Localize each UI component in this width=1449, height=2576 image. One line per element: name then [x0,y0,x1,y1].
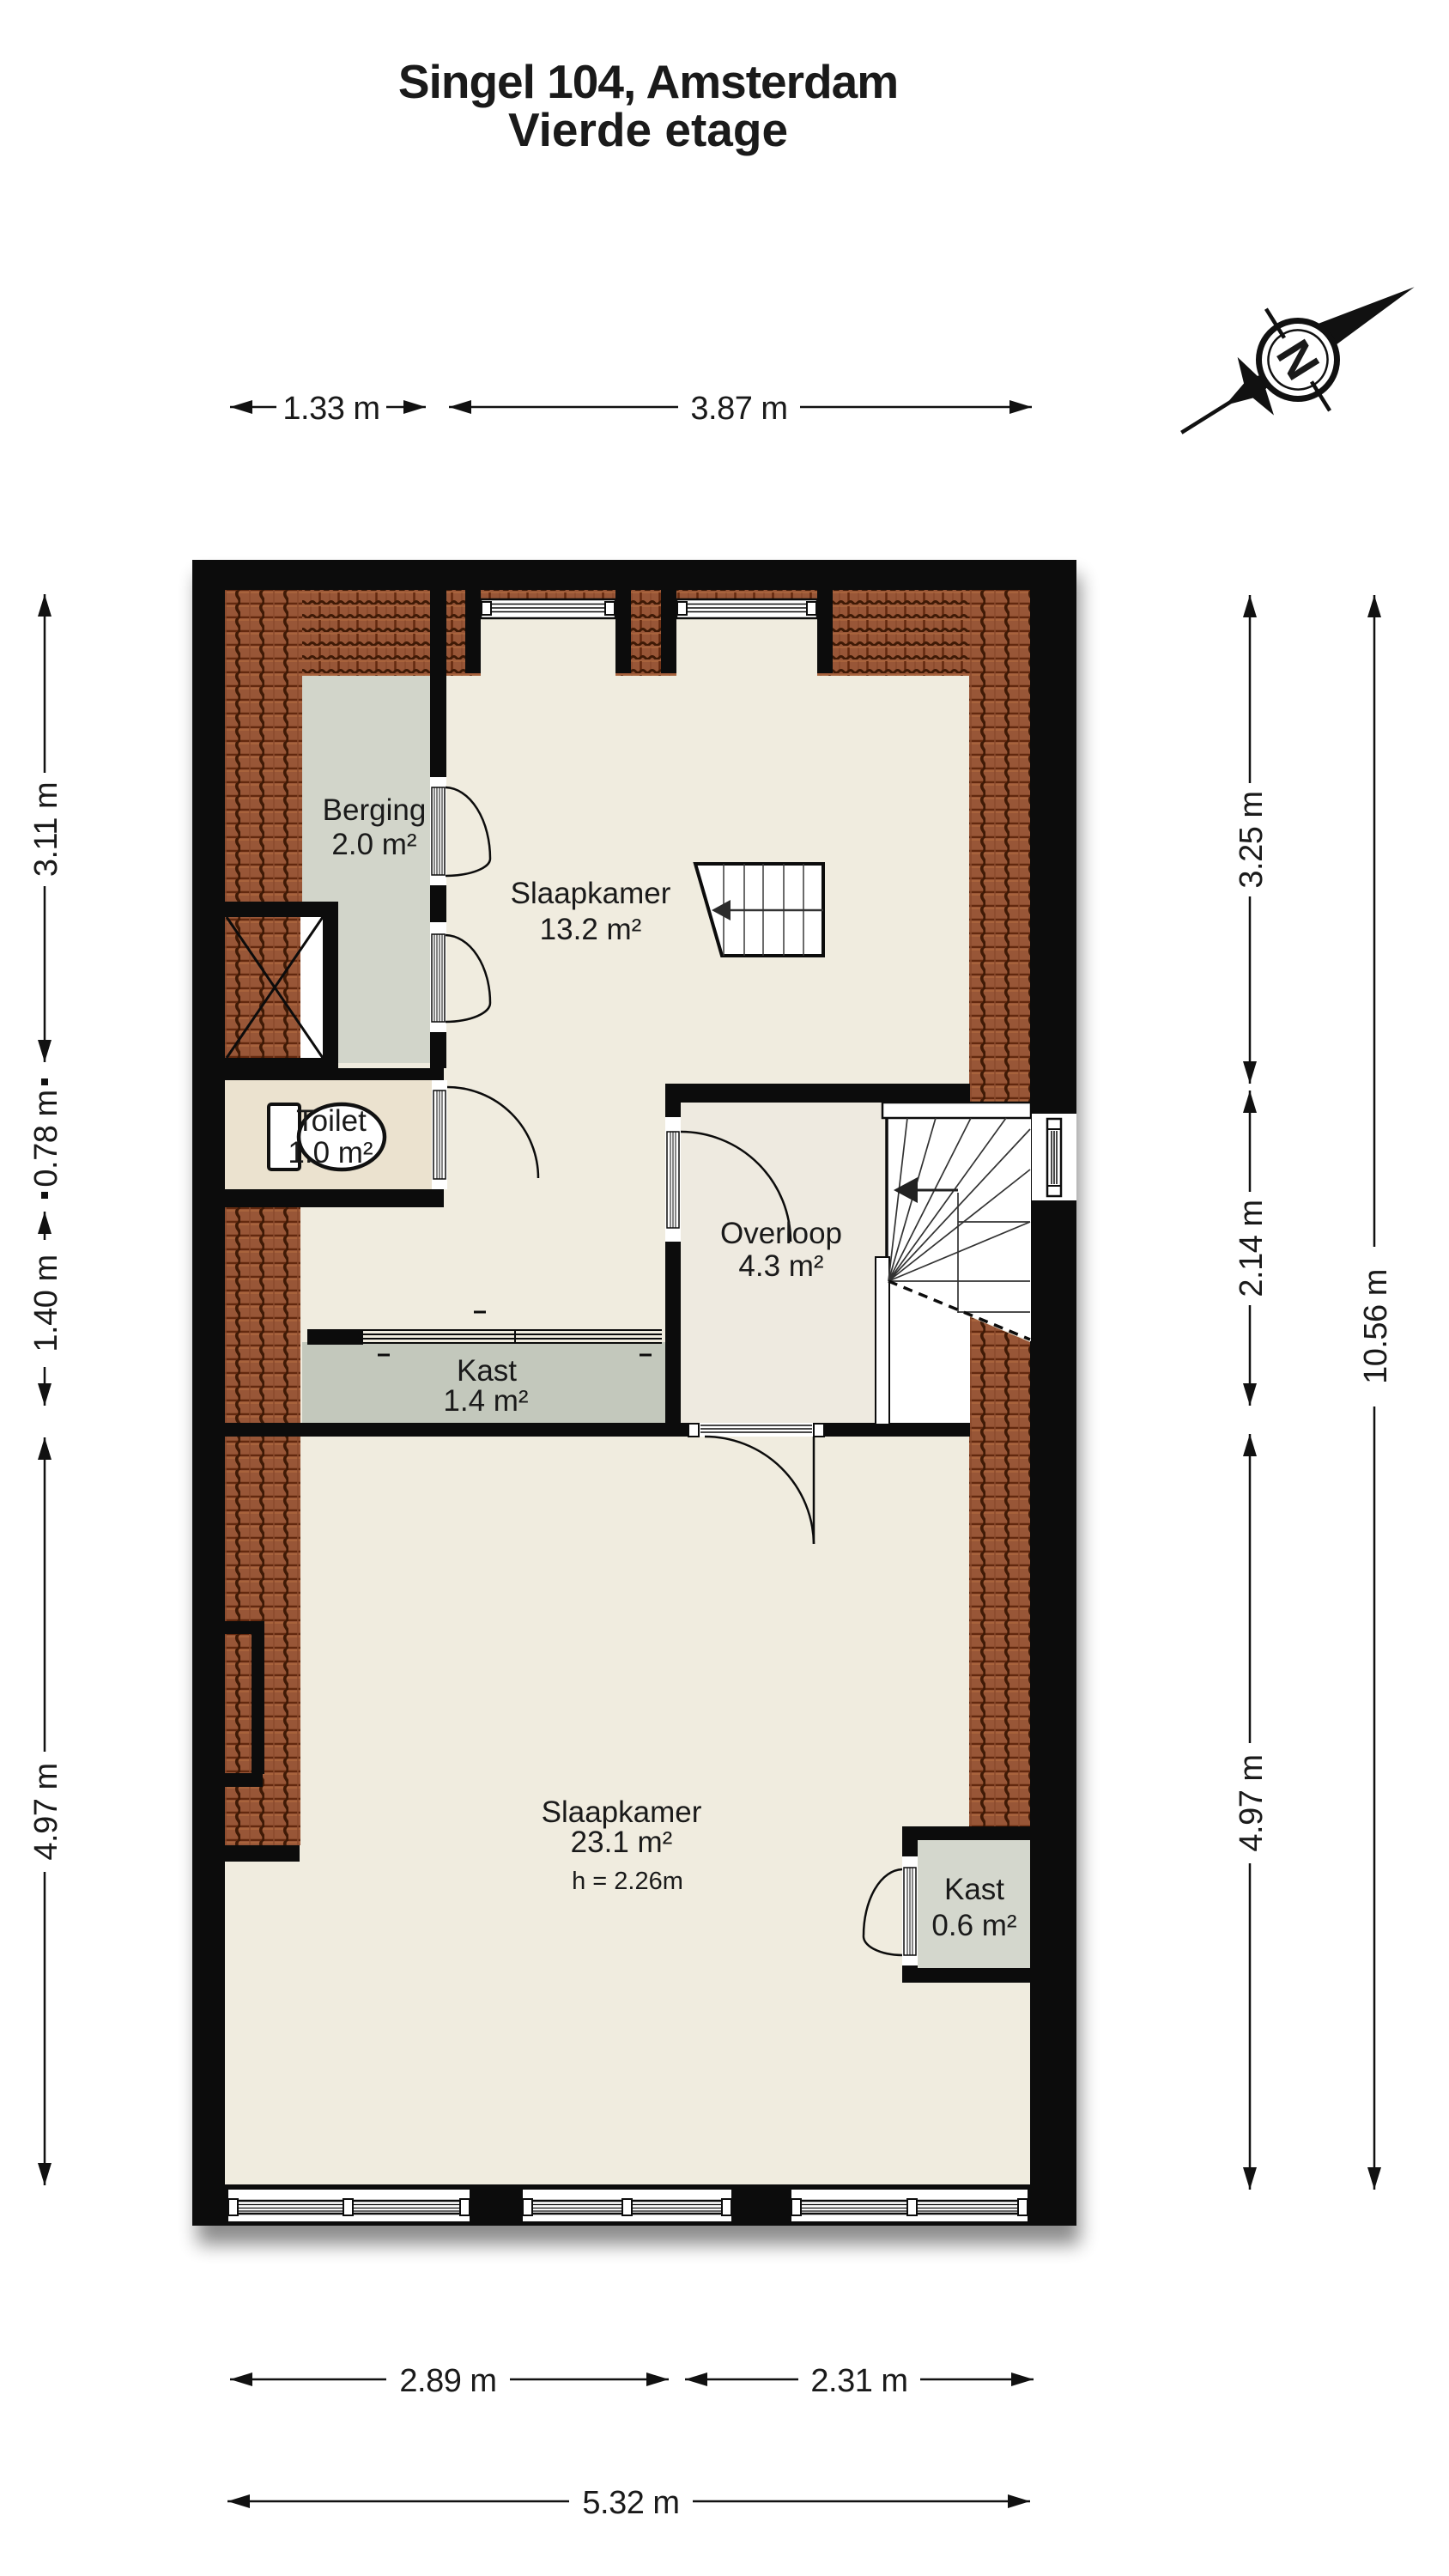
svg-text:4.3 m²: 4.3 m² [738,1249,823,1283]
svg-text:1.4 m²: 1.4 m² [443,1384,528,1418]
svg-text:2.31 m: 2.31 m [810,2363,907,2399]
svg-text:Kast: Kast [457,1354,517,1388]
svg-text:23.1 m²: 23.1 m² [571,1826,673,1859]
svg-text:3.11 m: 3.11 m [28,782,64,877]
svg-text:0.78 m: 0.78 m [28,1090,64,1187]
svg-text:1.40 m: 1.40 m [28,1255,64,1352]
svg-text:3.87 m: 3.87 m [690,391,787,427]
svg-text:Toilet: Toilet [296,1104,367,1138]
svg-text:2.89 m: 2.89 m [399,2363,496,2399]
svg-text:13.2 m²: 13.2 m² [540,913,642,946]
svg-text:4.97 m: 4.97 m [28,1763,64,1860]
svg-text:4.97 m: 4.97 m [1234,1754,1270,1851]
svg-text:2.0 m²: 2.0 m² [331,828,416,861]
svg-text:3.25 m: 3.25 m [1234,791,1270,888]
svg-text:1.33 m: 1.33 m [282,391,379,427]
svg-text:10.56 m: 10.56 m [1358,1269,1394,1384]
svg-text:1.0 m²: 1.0 m² [288,1136,373,1170]
svg-text:5.32 m: 5.32 m [582,2485,679,2521]
svg-text:Berging: Berging [323,793,427,827]
svg-text:Overloop: Overloop [720,1217,842,1250]
svg-text:h = 2.26m: h = 2.26m [572,1868,683,1895]
svg-text:2.14 m: 2.14 m [1234,1200,1270,1297]
svg-text:Slaapkamer: Slaapkamer [511,877,671,910]
svg-text:Vierde etage: Vierde etage [508,103,788,156]
svg-text:0.6 m²: 0.6 m² [931,1909,1016,1942]
svg-text:Kast: Kast [944,1873,1004,1906]
svg-text:Slaapkamer: Slaapkamer [542,1795,702,1829]
svg-text:Singel 104, Amsterdam: Singel 104, Amsterdam [398,55,898,108]
